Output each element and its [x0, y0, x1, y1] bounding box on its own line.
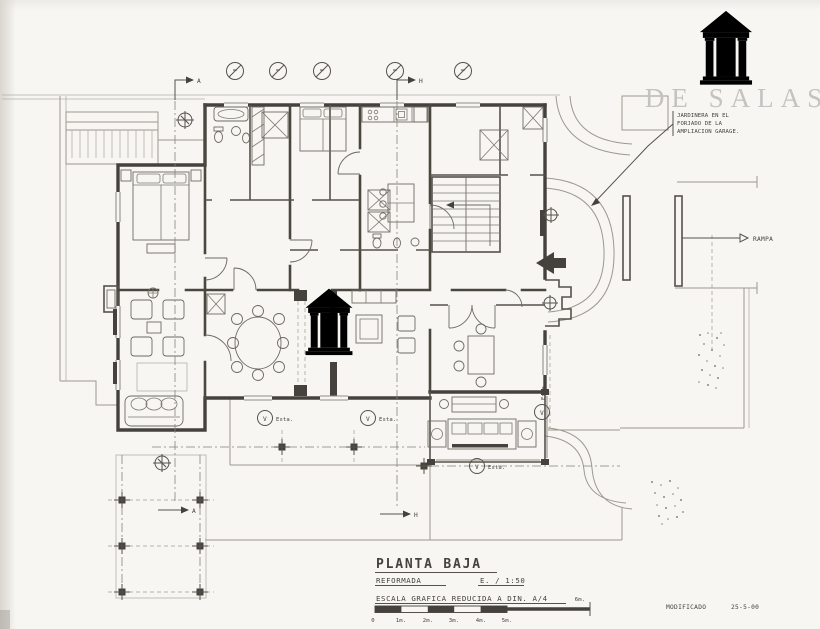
door-icon — [700, 11, 752, 85]
rampa-label: RAMPA — [753, 236, 773, 243]
closets — [207, 107, 543, 314]
floorplan-scan-page: A H A H — [0, 0, 820, 629]
deck-hatch — [72, 130, 152, 158]
radiator — [113, 309, 117, 335]
bathroom-1-fixtures — [214, 107, 250, 143]
section-label: H — [414, 512, 418, 519]
staircase — [432, 177, 500, 252]
plan-scale: E. / 1:50 — [480, 576, 525, 585]
jardinera-line-3: AMPLIACION GARAGE. — [677, 129, 739, 135]
vent-marker-letter: V — [540, 410, 544, 417]
title-block: PLANTA BAJA REFORMADA E. / 1:50 ESCALA G… — [371, 557, 759, 624]
entrance-arrow — [536, 252, 566, 274]
vent-marker-label: Esta. — [541, 383, 547, 400]
scale-tick-0: 0 — [371, 618, 374, 624]
scale-note: ESCALA GRAFICA REDUCIDA A DIN. A/4 — [376, 594, 548, 603]
scale-end-label: 6m. — [575, 597, 585, 603]
scale-tick-3: 3m. — [449, 618, 459, 624]
scale-tick-1: 1m. — [396, 618, 406, 624]
kitchen — [362, 107, 428, 222]
radiator — [113, 362, 117, 384]
section-marker-h-top: H — [397, 77, 423, 101]
vent-marker-1: V Esta. — [258, 411, 294, 426]
ramp-walls — [623, 176, 757, 294]
driveway-curve-inner — [545, 188, 604, 312]
porch-furniture — [428, 397, 536, 449]
radiator — [540, 210, 544, 236]
bed-2 — [300, 107, 346, 151]
walls-layer — [104, 105, 571, 465]
wc-fixtures — [373, 234, 419, 248]
modified-note: MODIFICADO 25-5-00 — [666, 604, 759, 611]
plan-title: PLANTA BAJA — [376, 557, 482, 572]
vent-marker-letter: V — [475, 464, 479, 471]
scale-tick-2: 2m. — [423, 618, 433, 624]
annotation-rampa: RAMPA — [682, 234, 773, 243]
site-lines-layer — [2, 95, 757, 600]
hall-table — [454, 324, 494, 387]
modified-label: MODIFICADO — [666, 604, 706, 611]
section-label: A — [197, 78, 201, 85]
floor-plan-drawing: A H A H — [0, 0, 820, 629]
vent-marker-label: Esta. — [488, 465, 505, 471]
brand-name: DE SALAS — [645, 83, 820, 113]
jardinera-line-1: JARDINERA EN EL — [677, 113, 730, 119]
brand-logo-top-right: DE SALAS — [645, 11, 820, 113]
scale-tick-5: 5m. — [502, 618, 512, 624]
vent-marker-letter: V — [366, 416, 370, 423]
vent-marker-label: Esta. — [276, 417, 293, 423]
door-icon — [306, 289, 353, 355]
dining-set — [228, 306, 289, 381]
annotation-jardinera: JARDINERA EN EL FORJADO DE LA AMPLIACION… — [591, 111, 739, 206]
scale-tick-4: 4m. — [476, 618, 486, 624]
markers-layer: A H A H — [114, 63, 566, 601]
vent-marker-label: Esta. — [379, 417, 396, 423]
crosshair-markers — [153, 111, 559, 472]
pergola-outline — [116, 455, 206, 598]
brand-watermark-center — [306, 289, 353, 355]
porch-walls — [427, 389, 549, 465]
grid-bubbles — [227, 63, 472, 80]
section-marker-a-bottom: A — [158, 507, 196, 516]
section-label: H — [419, 78, 423, 85]
section-marker-h-bottom: H — [380, 511, 418, 520]
vent-marker-letter: V — [263, 416, 267, 423]
sitting-area-furniture — [352, 290, 415, 353]
living-room-furniture — [125, 288, 187, 426]
modified-date: 25-5-00 — [731, 604, 759, 611]
section-label: A — [192, 508, 196, 515]
vent-marker-2: V Esta. — [361, 411, 397, 426]
jardinera-line-2: FORJADO DE LA — [677, 121, 723, 127]
vent-marker-3: V Esta. — [470, 459, 506, 474]
master-bed — [121, 170, 201, 253]
plan-subtitle: REFORMADA — [376, 576, 421, 585]
section-marker-a-top: A — [175, 77, 201, 101]
door-swing — [205, 152, 522, 361]
